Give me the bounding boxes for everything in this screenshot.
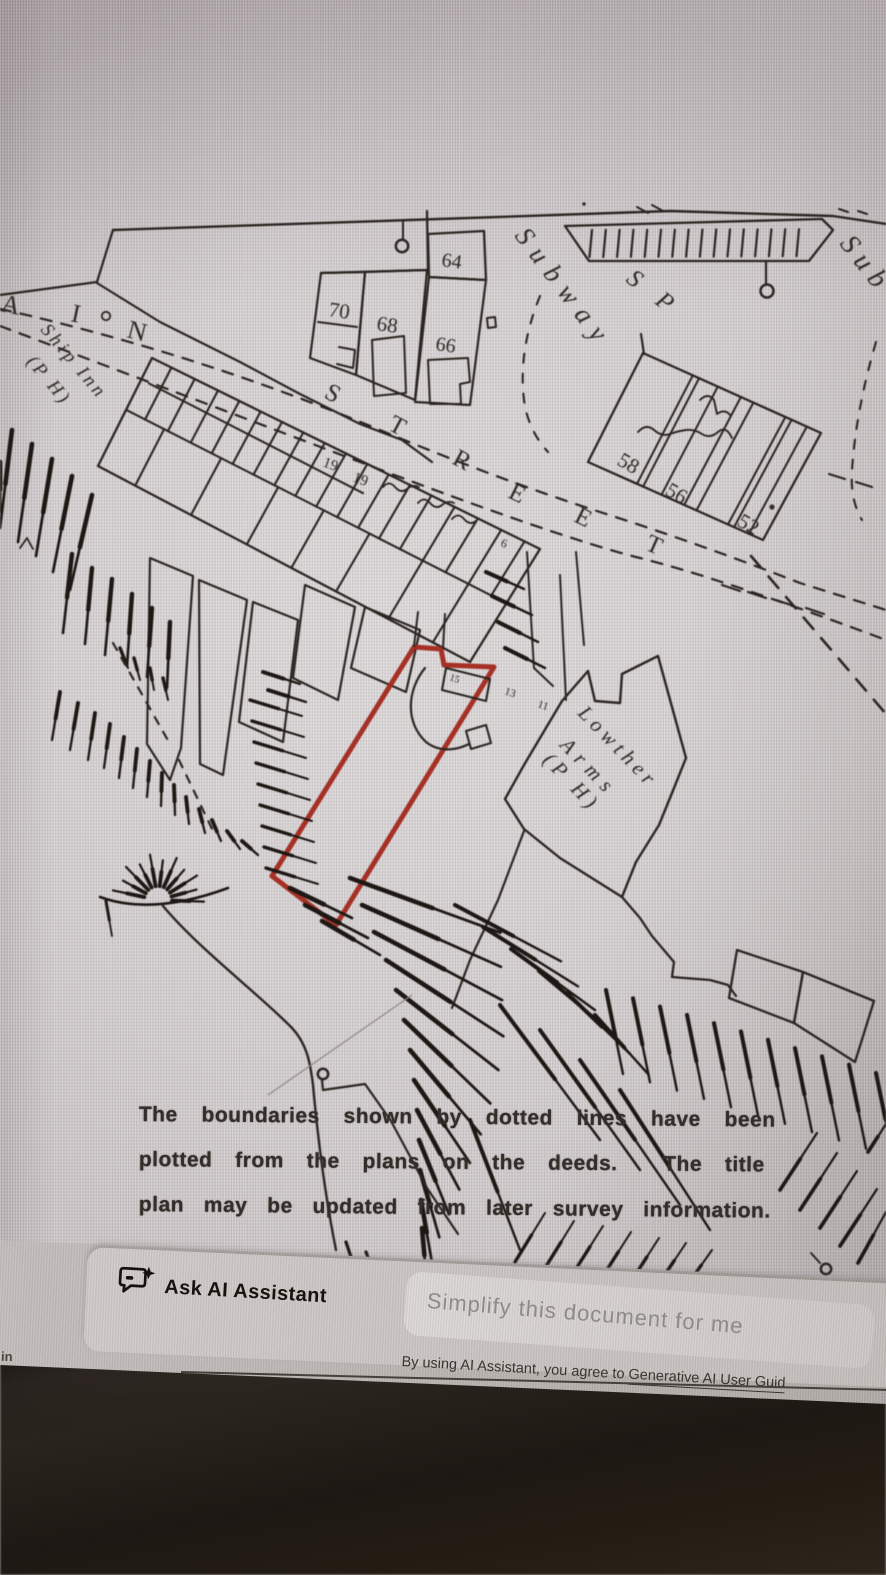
svg-text:11: 11 (536, 698, 550, 713)
svg-text:68: 68 (375, 311, 399, 338)
svg-text:13: 13 (503, 685, 518, 700)
svg-text:A: A (0, 289, 23, 321)
svg-text:E: E (570, 502, 596, 533)
svg-text:P: P (650, 286, 679, 317)
svg-text:T: T (642, 530, 667, 561)
svg-text:I: I (69, 299, 84, 329)
svg-text:E: E (504, 478, 530, 509)
svg-text:15: 15 (448, 672, 461, 686)
svg-text:N: N (125, 315, 150, 348)
svg-text:Subway: Subway (509, 222, 620, 355)
svg-text:T: T (384, 410, 410, 441)
svg-text:R: R (448, 444, 476, 476)
svg-text:6: 6 (499, 536, 509, 551)
svg-text:66: 66 (434, 333, 457, 358)
svg-text:Sub: Sub (833, 229, 886, 300)
svg-text:S: S (320, 378, 345, 408)
svg-text:56: 56 (662, 478, 692, 509)
svg-text:S: S (621, 264, 648, 293)
svg-text:70: 70 (327, 297, 351, 324)
svg-text:64: 64 (440, 249, 463, 274)
